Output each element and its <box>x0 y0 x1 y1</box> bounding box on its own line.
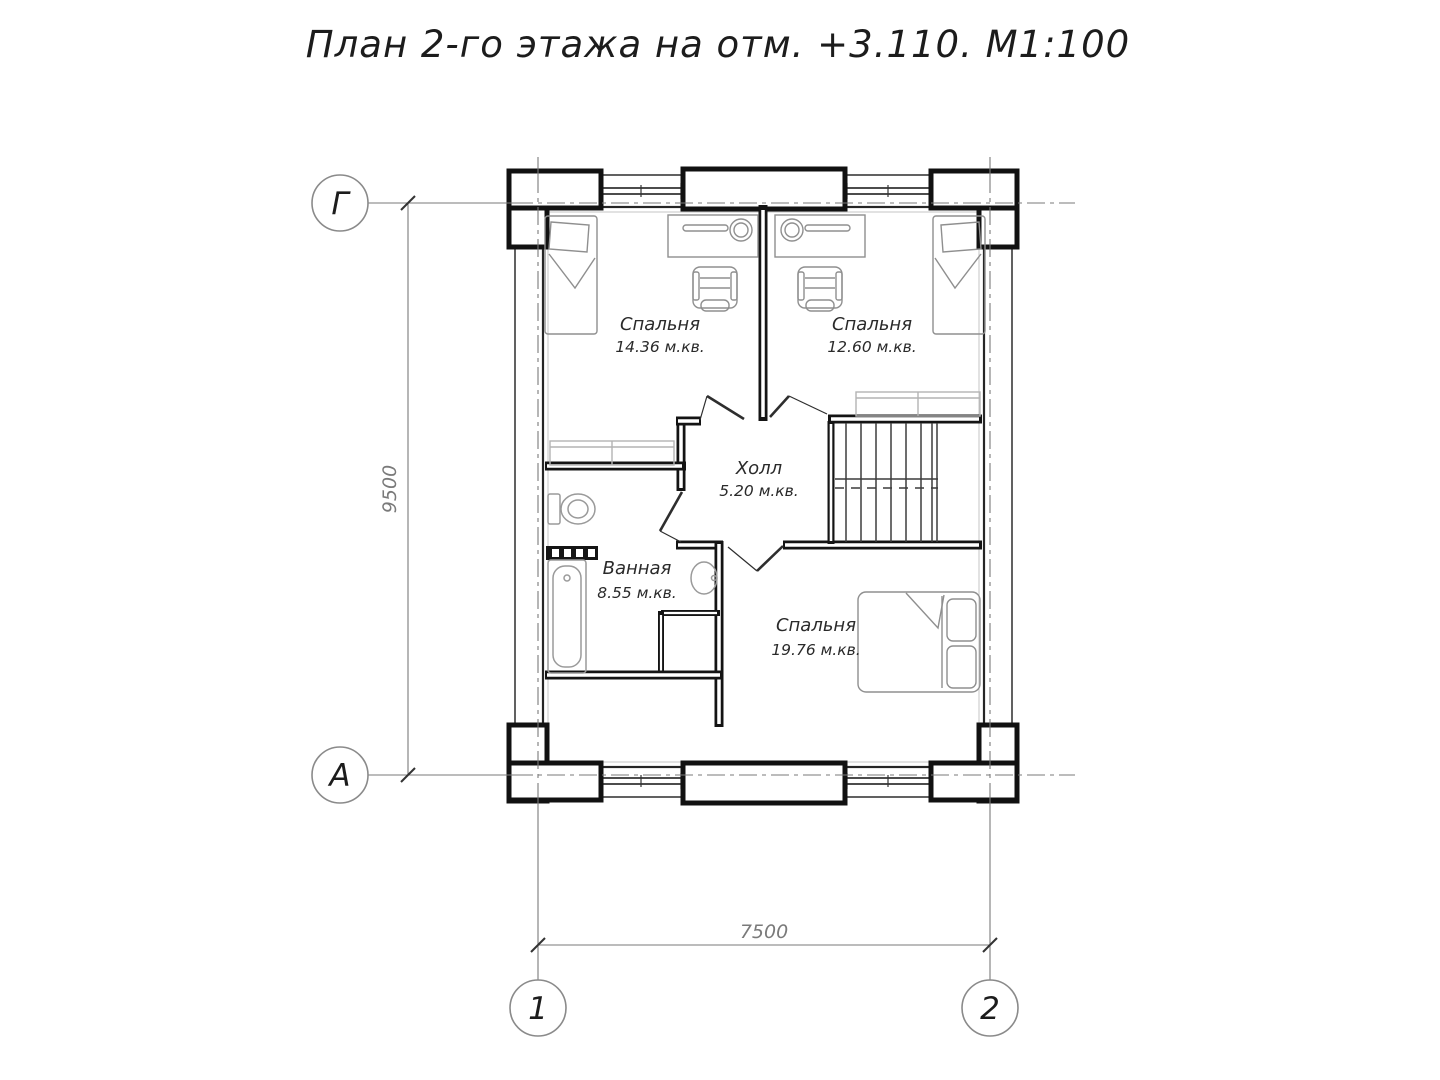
room-name: Ванная <box>603 558 672 579</box>
wardrobe-icon <box>550 441 674 465</box>
dimension-horizontal-label: 7500 <box>740 921 788 943</box>
room-label-hall: Холл 5.20 м.кв. <box>719 458 798 500</box>
room-label-bedroom2: Спальня 12.60 м.кв. <box>827 314 916 356</box>
room-name: Холл <box>735 458 782 479</box>
chair-icon <box>693 267 737 311</box>
grid-marker-label: А <box>327 758 350 794</box>
room-label-bedroom3: Спальня 19.76 м.кв. <box>771 615 860 659</box>
wardrobe-icon <box>856 392 980 416</box>
room-name: Спальня <box>776 615 856 636</box>
room-name: Спальня <box>832 314 912 335</box>
room-area: 12.60 м.кв. <box>827 338 916 356</box>
dimension-horizontal: 7500 <box>531 921 997 952</box>
drawing-sheet: 9500 7500 Г А 1 2 Спальня 14.36 м.кв. Сп… <box>0 0 1440 1080</box>
grid-marker-row-top: Г <box>312 175 368 231</box>
room-label-bedroom1: Спальня 14.36 м.кв. <box>615 314 704 356</box>
bed-icon <box>545 216 597 334</box>
dimension-vertical: 9500 <box>379 196 415 782</box>
grid-marker-col-right: 2 <box>962 980 1018 1036</box>
staircase <box>835 423 938 542</box>
room-label-bathroom: Ванная 8.55 м.кв. <box>597 558 676 602</box>
grid-marker-col-left: 1 <box>510 980 566 1036</box>
desk-icon <box>775 215 865 257</box>
room-area: 8.55 м.кв. <box>597 584 676 602</box>
dimension-vertical-label: 9500 <box>379 465 401 513</box>
floor-plan-svg: 9500 7500 Г А 1 2 Спальня 14.36 м.кв. Сп… <box>0 0 1440 1080</box>
window-top-right <box>845 183 932 199</box>
grid-marker-label: 1 <box>528 991 548 1027</box>
radiator-icon <box>546 546 598 560</box>
grid-marker-label: Г <box>331 186 351 222</box>
grid-marker-label: 2 <box>980 991 1000 1027</box>
toilet-icon <box>548 494 595 524</box>
drawing-title: План 2-го этажа на отм. +3.110. М1:100 <box>306 23 1130 66</box>
bathtub-icon <box>548 560 586 673</box>
double-bed-icon <box>858 592 980 692</box>
room-area: 14.36 м.кв. <box>615 338 704 356</box>
window-top-left <box>600 183 683 199</box>
room-area: 5.20 м.кв. <box>719 482 798 500</box>
room-name: Спальня <box>620 314 700 335</box>
grid-marker-row-bottom: А <box>312 747 368 803</box>
sink-icon <box>691 562 717 594</box>
chair-icon <box>798 267 842 311</box>
room-area: 19.76 м.кв. <box>771 641 860 659</box>
desk-icon <box>668 215 758 257</box>
